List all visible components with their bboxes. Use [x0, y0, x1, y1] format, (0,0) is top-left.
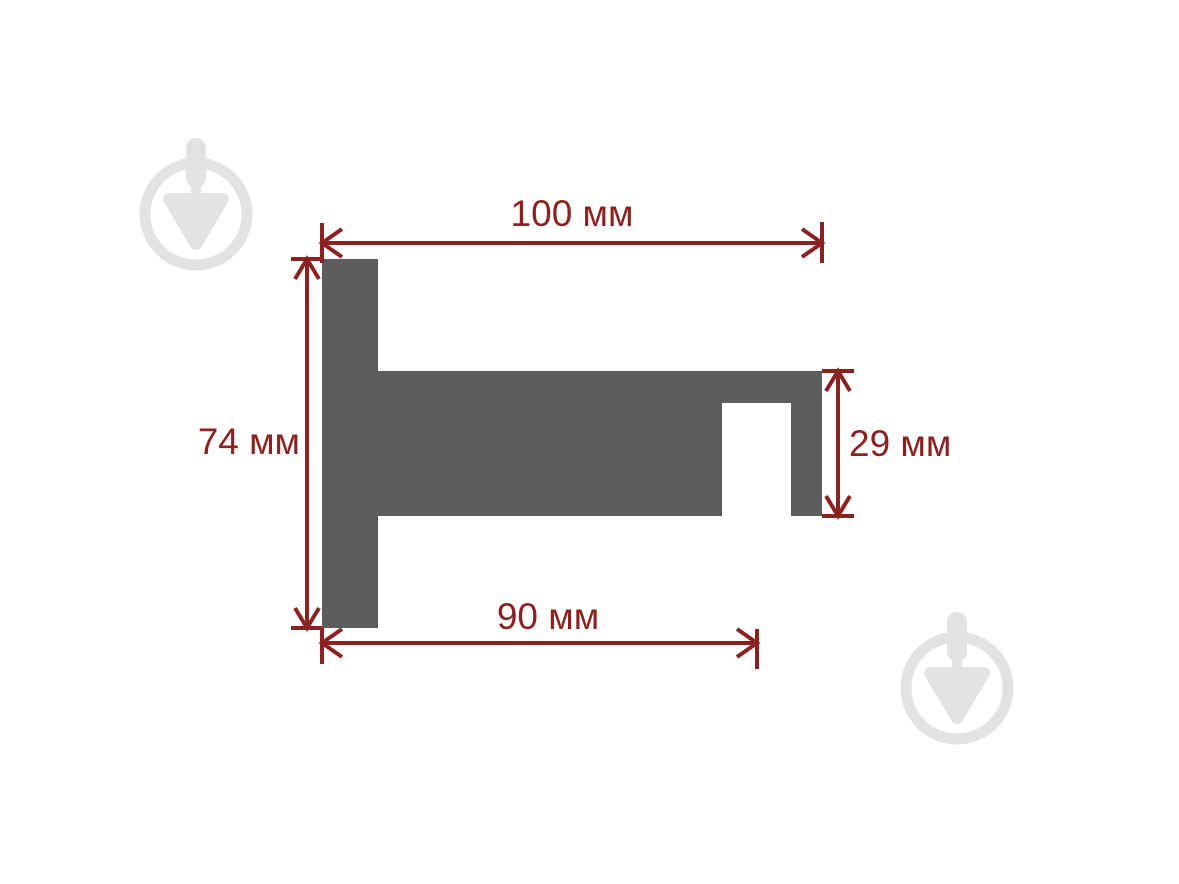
dimension-label-left-height: 74 мм	[140, 420, 300, 464]
dimension-label-right-height: 29 мм	[849, 422, 1009, 466]
dimension-drawing-canvas: 100 мм 74 мм 29 мм 90 мм	[0, 0, 1179, 884]
dimension-label-top-width: 100 мм	[422, 192, 722, 236]
dimension-label-bottom-width: 90 мм	[398, 595, 698, 639]
